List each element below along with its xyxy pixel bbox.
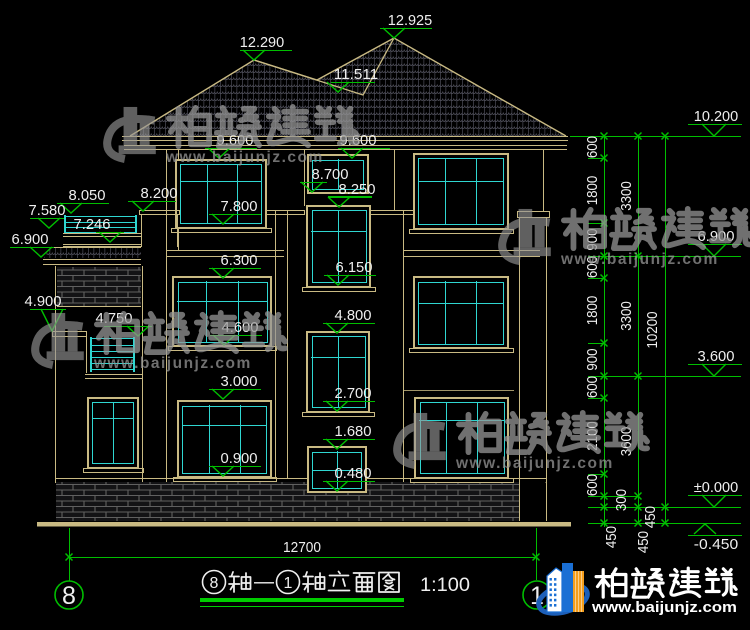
- svg-text:0.900: 0.900: [221, 451, 258, 467]
- svg-text:1.680: 1.680: [335, 424, 372, 440]
- svg-text:www.baijunjz.com: www.baijunjz.com: [93, 355, 252, 372]
- svg-text:12700: 12700: [283, 540, 321, 556]
- svg-text:1: 1: [284, 575, 293, 592]
- svg-text:8.050: 8.050: [69, 188, 106, 204]
- svg-text:450: 450: [604, 526, 620, 548]
- svg-text:7.246: 7.246: [74, 217, 111, 233]
- svg-text:900: 900: [585, 348, 601, 370]
- svg-text:6.150: 6.150: [336, 260, 373, 276]
- svg-text:1800: 1800: [585, 176, 601, 206]
- svg-text:450: 450: [636, 531, 652, 553]
- svg-text:10200: 10200: [645, 312, 661, 349]
- svg-text:4.900: 4.900: [25, 294, 62, 310]
- svg-text:—: —: [254, 571, 274, 593]
- svg-text:www.baijunjz.com: www.baijunjz.com: [455, 455, 614, 472]
- svg-text:600: 600: [585, 136, 601, 158]
- svg-text:4.800: 4.800: [335, 308, 372, 324]
- svg-text:8: 8: [62, 582, 76, 610]
- svg-text:www.baijunjz.com: www.baijunjz.com: [591, 599, 737, 616]
- svg-text:10.200: 10.200: [694, 109, 738, 125]
- svg-text:-0.450: -0.450: [694, 537, 738, 553]
- svg-text:www.baijunjz.com: www.baijunjz.com: [560, 251, 719, 268]
- svg-text:600: 600: [585, 376, 601, 398]
- svg-text:0.480: 0.480: [335, 466, 372, 482]
- svg-text:8: 8: [210, 575, 219, 592]
- svg-text:3300: 3300: [619, 181, 635, 211]
- svg-text:12.925: 12.925: [388, 13, 432, 29]
- svg-text:7.580: 7.580: [29, 203, 66, 219]
- svg-text:1800: 1800: [585, 296, 601, 326]
- svg-text:6.900: 6.900: [12, 232, 49, 248]
- svg-text:2.700: 2.700: [335, 386, 372, 402]
- svg-text:7.800: 7.800: [221, 199, 258, 215]
- svg-text:3.600: 3.600: [698, 349, 735, 365]
- svg-text:3300: 3300: [619, 301, 635, 331]
- svg-text:8.250: 8.250: [339, 182, 376, 198]
- svg-text:11.511: 11.511: [334, 67, 378, 83]
- svg-text:6.300: 6.300: [221, 253, 258, 269]
- svg-text:8.700: 8.700: [312, 167, 349, 183]
- svg-text:www.baijunjz.com: www.baijunjz.com: [165, 149, 324, 166]
- svg-text:3.000: 3.000: [221, 374, 258, 390]
- svg-text:8.200: 8.200: [141, 186, 178, 202]
- svg-text:450: 450: [643, 506, 659, 528]
- svg-text:±0.000: ±0.000: [694, 480, 738, 496]
- svg-text:1:100: 1:100: [420, 575, 470, 596]
- svg-text:300: 300: [614, 489, 630, 511]
- svg-text:12.290: 12.290: [240, 35, 284, 51]
- svg-text:600: 600: [585, 474, 601, 496]
